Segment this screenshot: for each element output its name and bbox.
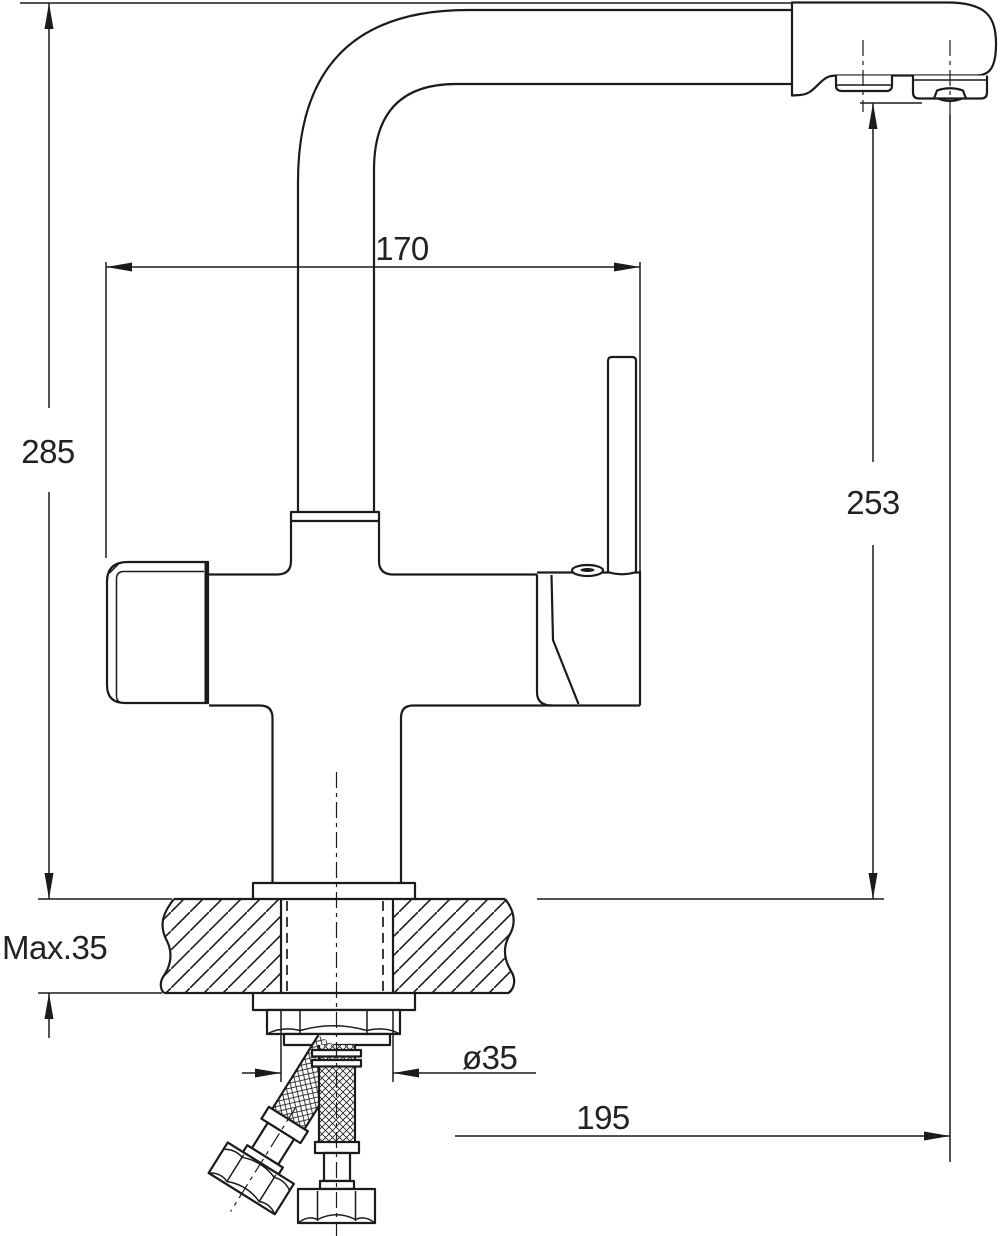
washer: [253, 993, 415, 1010]
arrow-up-icon: [869, 103, 878, 129]
filter-knob: [107, 562, 208, 703]
arrow-up-icon: [45, 993, 54, 1019]
arrow-right-icon: [255, 1069, 281, 1078]
countertop-hatch-left: [161, 899, 281, 993]
dimension-max35: Max.35: [2, 929, 107, 1038]
dimension-253: 253: [846, 103, 900, 899]
countertop-hatch-right: [393, 899, 514, 993]
arrow-down-icon: [45, 873, 54, 899]
dim-label-outlet-offset: 195: [576, 1099, 630, 1136]
faucet-outline: [107, 3, 996, 900]
dim-label-hole-diameter: ø35: [462, 1039, 517, 1076]
faucet-dimension-drawing: 285 170 253 Max.35 ø35 1: [0, 0, 1000, 1236]
body-neck-right: [379, 521, 537, 575]
lever-silhouette-edge: [552, 575, 579, 704]
spout-outer-edge: [298, 10, 793, 512]
arrow-up-icon: [45, 3, 54, 29]
shank-hidden-edges: [287, 901, 383, 992]
body-neck-left: [209, 521, 291, 575]
locknut: [267, 1010, 400, 1034]
arrow-right-icon: [924, 1132, 950, 1141]
mounting-hardware: [253, 993, 415, 1045]
dimension-195: 195: [455, 1099, 950, 1141]
dim-label-overall-height: 285: [21, 433, 75, 470]
body-bottom-right: [401, 706, 640, 884]
dim-label-spout-reach: 170: [375, 230, 429, 267]
technical-drawing-page: 285 170 253 Max.35 ø35 1: [0, 0, 1000, 1236]
arrow-down-icon: [869, 873, 878, 899]
aerator-left: [836, 76, 892, 92]
arrow-left-icon: [393, 1069, 419, 1078]
mounting-flange: [253, 883, 415, 899]
dim-label-counter-thickness: Max.35: [2, 929, 107, 966]
body-bottom-left: [209, 706, 273, 884]
lever-bar: [608, 357, 636, 574]
dim-label-spout-height: 253: [846, 484, 900, 521]
arrow-left-icon: [106, 263, 132, 272]
handle-lever: [537, 357, 640, 706]
spout-inner-edge: [374, 84, 793, 512]
arrow-right-icon: [614, 263, 640, 272]
riser-collar: [291, 512, 379, 521]
dimension-285: 285: [21, 3, 75, 899]
countertop-section: [161, 899, 514, 993]
lever-pivot-pin: [581, 568, 595, 572]
